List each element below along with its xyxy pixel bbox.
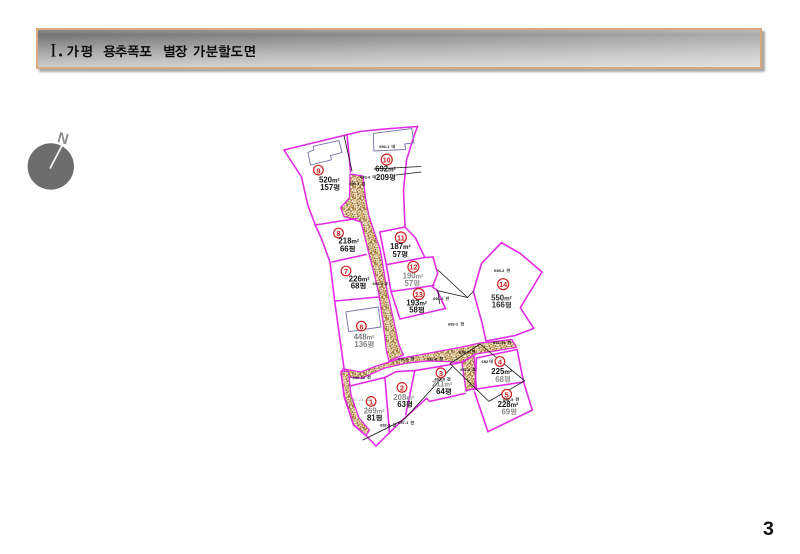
svg-text:695-1: 695-1 — [349, 181, 360, 186]
svg-text:7: 7 — [344, 267, 348, 276]
svg-text:(697-23: (697-23 — [350, 397, 365, 402]
svg-text:692-8: 692-8 — [435, 377, 446, 382]
svg-text:68: 68 — [495, 375, 504, 384]
svg-text:166: 166 — [492, 301, 506, 310]
svg-text:10: 10 — [383, 155, 391, 164]
svg-text:81: 81 — [367, 414, 376, 423]
svg-text:697-1: 697-1 — [398, 420, 409, 425]
svg-text:I: I — [50, 41, 56, 61]
svg-text:57: 57 — [405, 279, 414, 288]
svg-text:66: 66 — [340, 245, 349, 254]
svg-text:2: 2 — [400, 384, 404, 393]
svg-text:692-8: 692-8 — [427, 356, 438, 361]
svg-text:692: 692 — [481, 359, 488, 364]
svg-text:209: 209 — [376, 173, 390, 182]
svg-text:692-2: 692-2 — [433, 296, 444, 301]
svg-text:692-5: 692-5 — [503, 397, 514, 402]
svg-text:692-1: 692-1 — [379, 144, 390, 149]
svg-text:64: 64 — [436, 387, 445, 396]
svg-text:12: 12 — [409, 263, 417, 272]
svg-text:692-13: 692-13 — [493, 340, 506, 345]
svg-text:9: 9 — [316, 166, 320, 175]
svg-text:58: 58 — [409, 306, 418, 315]
svg-text:693-2: 693-2 — [494, 268, 505, 273]
svg-text:157: 157 — [320, 183, 333, 192]
svg-text:692-9: 692-9 — [398, 356, 409, 361]
svg-text:692-4: 692-4 — [372, 281, 383, 286]
svg-text:6: 6 — [359, 322, 363, 331]
svg-text:63: 63 — [397, 400, 406, 409]
svg-text:14: 14 — [499, 280, 508, 289]
svg-text:692-7: 692-7 — [459, 349, 470, 354]
svg-text:.: . — [58, 41, 63, 61]
svg-text:692-4: 692-4 — [460, 367, 471, 372]
svg-text:57: 57 — [392, 250, 401, 259]
svg-text:692-2: 692-2 — [448, 322, 459, 327]
svg-text:692-3: 692-3 — [380, 423, 391, 428]
svg-text:692-6: 692-6 — [360, 175, 371, 180]
svg-text:69: 69 — [501, 407, 510, 416]
svg-text:692-10: 692-10 — [352, 375, 365, 380]
svg-text:692m²: 692m² — [375, 164, 396, 173]
svg-text:136: 136 — [354, 340, 368, 349]
svg-text:68: 68 — [351, 282, 360, 291]
